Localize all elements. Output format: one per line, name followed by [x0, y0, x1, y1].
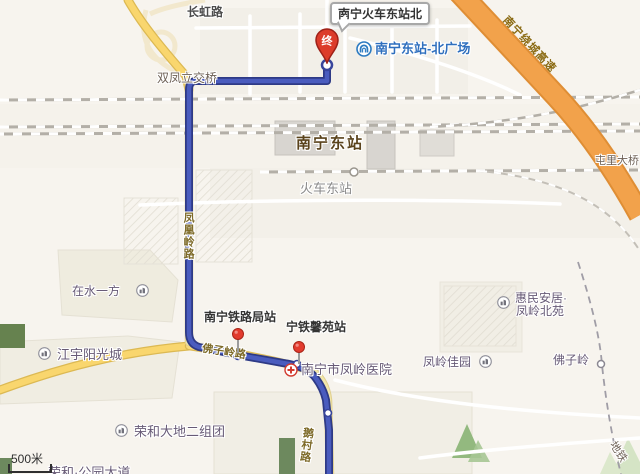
end-marker-text: 终	[322, 34, 334, 48]
metro-station-dot	[598, 361, 605, 368]
destination-callout[interactable]: 南宁火车东站北	[330, 2, 430, 25]
poi-label-fengling-jiayuan[interactable]: 凤岭佳园	[423, 356, 471, 369]
building-icon	[136, 284, 149, 302]
road-label-tunli-bridge: 屯里大桥	[595, 155, 639, 167]
destination-callout-text: 南宁火车东站北	[338, 7, 422, 21]
poi-label-foziling-station[interactable]: 佛子岭	[553, 354, 589, 367]
poi-label-zaishuiyifang[interactable]: 在水一方	[72, 285, 120, 298]
road-label-shuangfeng-interchange: 双凤立交桥	[157, 72, 217, 85]
bus-stop-label-tieluju[interactable]: 南宁铁路局站	[204, 311, 276, 324]
bus-stop-label-ningtie-xinyuan[interactable]: 宁铁馨苑站	[286, 321, 346, 334]
scale-bar	[8, 464, 52, 473]
railway-station-sub-label[interactable]: 火车东站	[300, 182, 352, 196]
building-icon	[497, 296, 510, 314]
poi-label-ronghe[interactable]: 荣和大地二组团	[134, 425, 225, 439]
poi-label-hospital[interactable]: 南宁市凤岭医院	[301, 363, 392, 377]
building-icon	[115, 424, 128, 442]
building-icon	[479, 355, 492, 373]
station-entrance-icon	[350, 168, 358, 176]
road-label-changhong: 长虹路	[187, 6, 223, 19]
building-icon	[38, 347, 51, 365]
bus-stop-pin-ningtie-xinyuan[interactable]	[292, 340, 306, 371]
metro-north-plaza-label[interactable]: 南宁东站-北广场	[375, 42, 470, 56]
bus-stop-pin-tieluju[interactable]	[231, 327, 245, 360]
poi-label-jiangyu[interactable]: 江宇阳光城	[57, 348, 122, 362]
road-label-fenghuangling: 凤凰岭路	[182, 212, 194, 260]
route-end-marker[interactable]: 终	[314, 28, 340, 69]
metro-icon[interactable]	[356, 41, 372, 62]
poi-label-ronghe-south[interactable]: 荣和·公园大道	[48, 466, 130, 474]
poi-label-huimin-line2[interactable]: 凤岭北苑	[516, 305, 564, 318]
railway-station-label[interactable]: 南宁东站	[296, 136, 364, 153]
park-area	[0, 324, 25, 348]
map-canvas[interactable]: 长虹路 南宁火车东站北 终 南宁东站-北广场 双凤立交桥 南宁绕城高速 南宁东站…	[0, 0, 640, 474]
